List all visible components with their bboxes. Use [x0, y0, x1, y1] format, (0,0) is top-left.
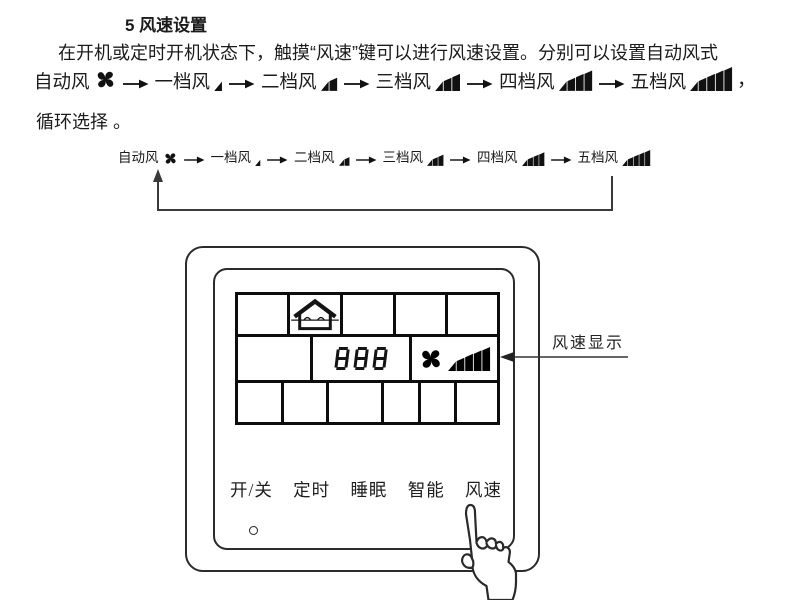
wind-bars-5-icon	[448, 347, 491, 371]
flow-label-level-1: 一档风	[211, 151, 252, 166]
arrow-right-icon	[467, 79, 493, 89]
pointing-hand-icon	[452, 502, 532, 600]
manual-page: 5 风速设置 在开机或定时开机状态下，触摸“风速”键可以进行风速设置。分别可以设…	[0, 0, 790, 600]
arrow-right-icon	[184, 156, 205, 164]
fan-speed-sequence-text: 自动风一档风二档风三档风四档风五档风，	[34, 66, 756, 92]
arrow-right-icon	[229, 79, 255, 89]
arrow-right-icon	[599, 79, 625, 89]
flow-label-auto: 自动风	[34, 72, 90, 92]
flow-label-level-5: 五档风	[631, 72, 687, 92]
wind-bars-1-icon	[214, 67, 223, 91]
comma: ，	[737, 66, 756, 92]
sleep-button[interactable]: 睡眠	[350, 477, 387, 502]
flow-label-level-5: 五档风	[578, 151, 619, 166]
wind-bars-4-icon	[559, 67, 593, 91]
callout-arrow-icon	[500, 350, 630, 364]
flow-label-auto: 自动风	[118, 151, 159, 166]
lcd-cell	[457, 383, 498, 422]
arrow-right-icon	[123, 79, 149, 89]
house-airflow-icon	[290, 298, 340, 332]
lcd-cell	[448, 295, 497, 334]
fan-icon	[94, 68, 117, 91]
lcd-row-bottom	[238, 383, 497, 422]
flow-label-level-4: 四档风	[499, 72, 555, 92]
wind-bars-2-icon	[321, 67, 338, 91]
lcd-cell-house	[290, 295, 340, 334]
arrow-right-icon	[267, 156, 288, 164]
wind-bars-5-icon	[690, 67, 733, 91]
wind-bars-2-icon	[339, 150, 350, 166]
lcd-cell	[396, 295, 445, 334]
lcd-cell-digits	[313, 337, 409, 380]
lcd-row-top	[238, 295, 497, 334]
lcd-display	[235, 292, 500, 425]
lcd-cell	[343, 295, 392, 334]
fan-icon	[163, 151, 178, 166]
lcd-row-middle	[238, 337, 497, 380]
power-button[interactable]: 开/关	[230, 477, 273, 502]
smart-button[interactable]: 智能	[408, 477, 445, 502]
fan-speed-display	[412, 337, 497, 380]
lcd-cell	[329, 383, 381, 422]
lcd-cell	[238, 383, 281, 422]
lcd-cell	[238, 295, 287, 334]
flow-label-level-3: 三档风	[383, 151, 424, 166]
wind-bars-3-icon	[435, 67, 461, 91]
fan-speed-sequence-diagram: 自动风一档风二档风三档风四档风五档风	[118, 150, 651, 166]
temperature-readout	[333, 345, 390, 372]
arrow-right-icon	[551, 156, 572, 164]
lcd-cell	[284, 383, 325, 422]
touch-buttons: 开/关 定时 睡眠 智能 风速	[230, 477, 502, 502]
lcd-cell	[421, 383, 454, 422]
flow-label-level-3: 三档风	[376, 72, 432, 92]
wind-bars-3-icon	[427, 150, 444, 166]
fan-speed-button[interactable]: 风速	[465, 477, 502, 502]
flow-label-level-1: 一档风	[155, 72, 211, 92]
arrow-right-icon	[344, 79, 370, 89]
section-title: 5 风速设置	[125, 11, 207, 36]
flow-label-level-2: 二档风	[294, 151, 335, 166]
wind-bars-5-icon	[622, 150, 651, 166]
indicator-led	[249, 526, 258, 535]
flow-label-level-2: 二档风	[261, 72, 317, 92]
arrow-right-icon	[356, 156, 377, 164]
arrow-right-icon	[450, 156, 471, 164]
lcd-cell	[384, 383, 418, 422]
fan-icon	[418, 346, 444, 372]
cycle-back-arrow	[148, 168, 623, 216]
wind-bars-1-icon	[255, 150, 261, 166]
paragraph-line-3: 循环选择 。	[36, 108, 131, 134]
wind-bars-4-icon	[522, 150, 545, 166]
lcd-cell	[238, 337, 310, 380]
flow-label-level-4: 四档风	[477, 151, 518, 166]
timer-button[interactable]: 定时	[293, 477, 330, 502]
paragraph-line-1: 在开机或定时开机状态下，触摸“风速”键可以进行风速设置。分别可以设置自动风式	[58, 39, 718, 65]
